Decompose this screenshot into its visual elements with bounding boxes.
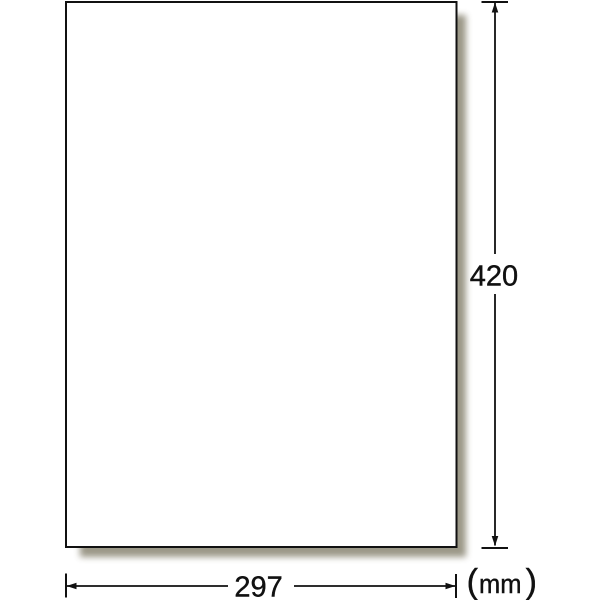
svg-text:(: (: [467, 563, 479, 600]
svg-text:mm: mm: [479, 571, 521, 599]
svg-text:420: 420: [470, 261, 518, 293]
svg-text:297: 297: [234, 572, 282, 600]
svg-text:): ): [526, 563, 537, 600]
